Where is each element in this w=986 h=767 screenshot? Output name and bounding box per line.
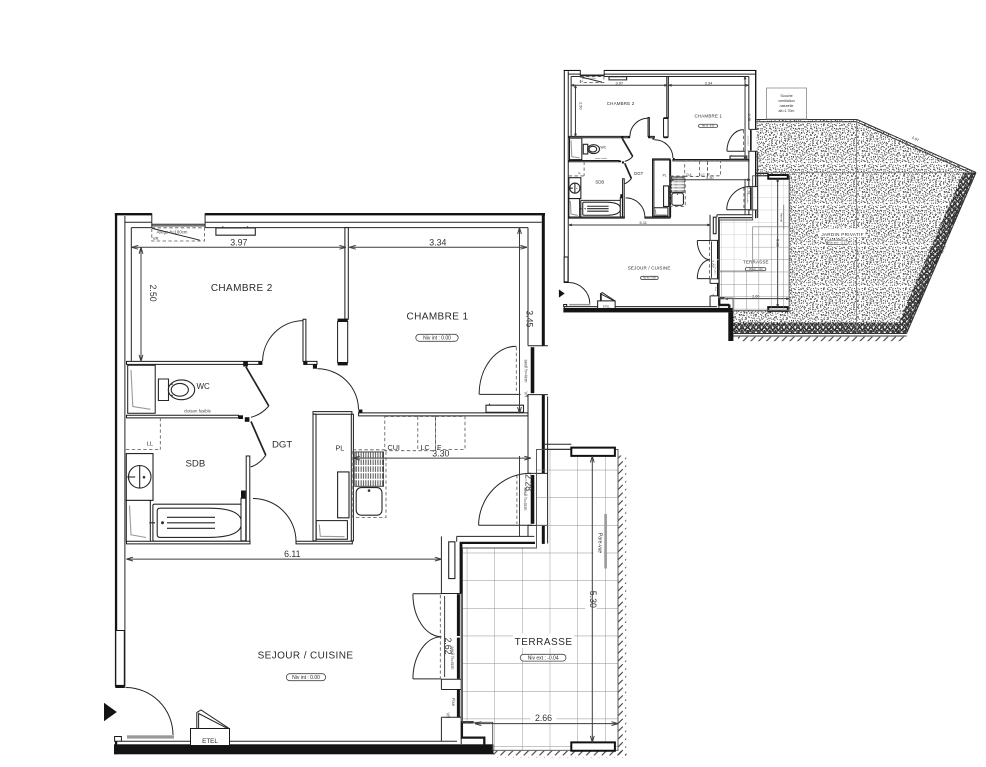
svg-text:3.45: 3.45: [524, 310, 534, 327]
svg-text:Fixe: Fixe: [451, 698, 456, 707]
svg-text:3.97: 3.97: [230, 238, 247, 248]
svg-text:DGT: DGT: [272, 439, 292, 450]
svg-text:Niv int : 0.00: Niv int : 0.00: [423, 336, 451, 342]
svg-text:Souche: Souche: [780, 94, 792, 98]
svg-text:JARDIN PRIVATIF: JARDIN PRIVATIF: [821, 232, 863, 237]
svg-text:SDB: SDB: [186, 459, 206, 470]
svg-text:alt=1.70m: alt=1.70m: [779, 109, 795, 113]
svg-text:3.34: 3.34: [429, 238, 446, 248]
svg-text:Allège h=100cm: Allège h=100cm: [157, 230, 188, 235]
svg-text:5.30: 5.30: [588, 591, 598, 608]
svg-text:Niv int : 0.00: Niv int : 0.00: [292, 675, 320, 681]
svg-text:2.50: 2.50: [148, 285, 158, 302]
svg-text:ETEL: ETEL: [202, 738, 218, 745]
svg-text:6.11: 6.11: [284, 549, 301, 559]
svg-text:seuil h=4cm: seuil h=4cm: [524, 359, 529, 382]
svg-text:naturelle: naturelle: [780, 104, 794, 108]
svg-text:TERRASSE: TERRASSE: [515, 637, 573, 648]
svg-text:Niv ext : -0.04: Niv ext : -0.04: [528, 656, 559, 662]
svg-text:CHAMBRE 1: CHAMBRE 1: [407, 311, 469, 322]
svg-text:seuil h=4cm: seuil h=4cm: [523, 487, 528, 510]
svg-text:2.66: 2.66: [535, 713, 552, 723]
svg-text:VR: VR: [446, 713, 451, 719]
svg-text:Niv ext : -0.17: Niv ext : -0.17: [829, 241, 848, 245]
svg-text:ventilation: ventilation: [778, 99, 794, 103]
svg-text:CUI: CUI: [388, 443, 400, 452]
svg-text:PL: PL: [336, 443, 345, 452]
svg-text:SEJOUR / CUISINE: SEJOUR / CUISINE: [258, 651, 354, 662]
svg-text:seuil h=4cm: seuil h=4cm: [450, 646, 455, 669]
svg-text:VR: VR: [153, 236, 159, 241]
svg-text:Pare-vue: Pare-vue: [597, 533, 603, 554]
svg-text:CHAMBRE 2: CHAMBRE 2: [211, 283, 273, 294]
svg-text:cloison fusible: cloison fusible: [184, 408, 212, 413]
svg-text:WC: WC: [197, 382, 211, 391]
svg-text:LL: LL: [147, 442, 153, 448]
svg-text:VR: VR: [524, 392, 529, 398]
svg-text:LC: LC: [421, 443, 430, 452]
svg-text:3.30: 3.30: [432, 448, 449, 458]
